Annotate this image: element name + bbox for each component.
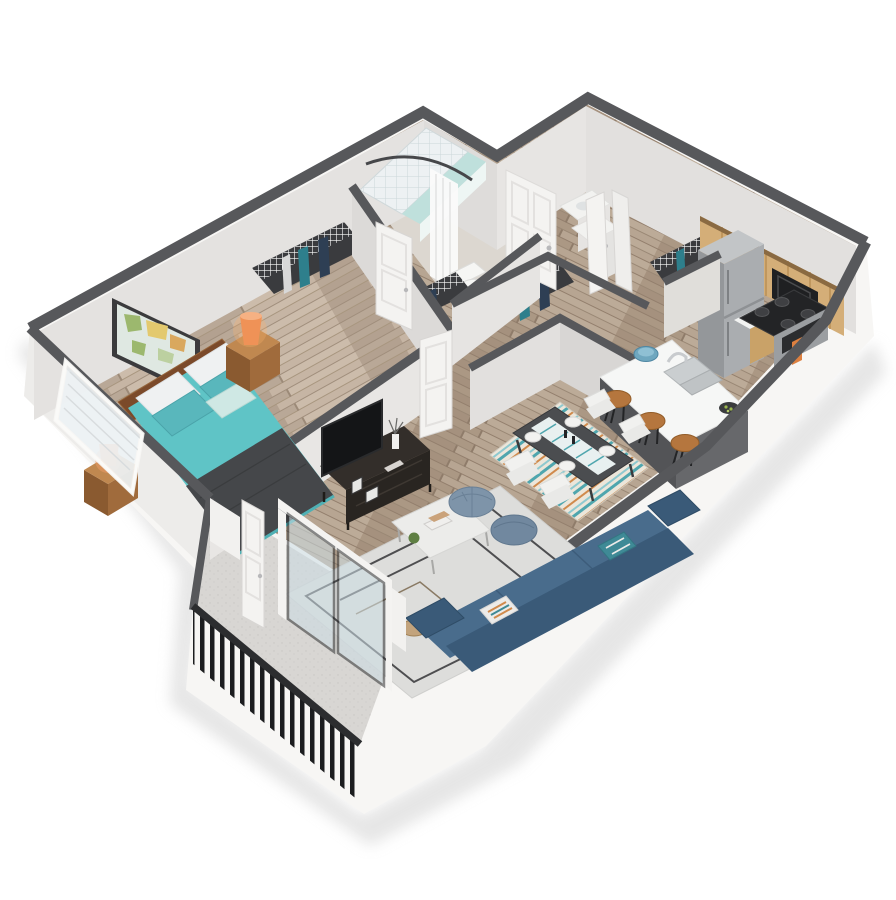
place-setting: [559, 461, 575, 471]
ottoman-pouf: [491, 515, 537, 545]
bathroom-door: [376, 222, 412, 330]
hanging-clothes-teal: [298, 246, 310, 288]
door-knob: [547, 246, 552, 251]
bedroom-door: [420, 330, 452, 438]
place-setting: [565, 417, 581, 427]
hanging-clothes-navy: [318, 236, 330, 278]
floor-plan-stage: [0, 0, 896, 900]
place-setting: [525, 432, 541, 442]
place-setting: [599, 446, 615, 456]
balcony-door: [242, 500, 264, 628]
plant: [409, 533, 420, 544]
floor-plan-render: [0, 0, 896, 900]
vase: [392, 434, 399, 449]
